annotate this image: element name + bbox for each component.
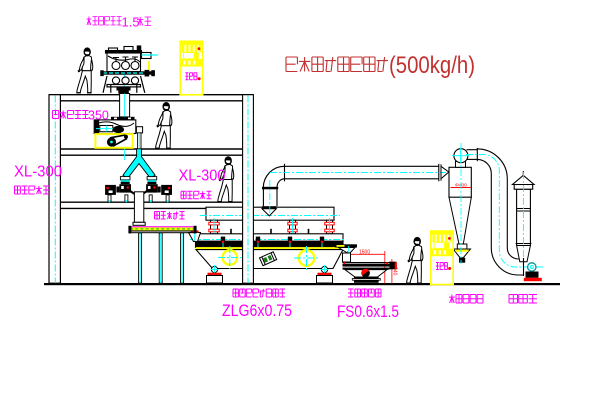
svg-text:1500: 1500 <box>359 250 370 256</box>
svg-text:(500kg/h): (500kg/h) <box>389 52 475 79</box>
svg-text:350: 350 <box>88 109 109 123</box>
svg-text:XL-300: XL-300 <box>14 164 62 181</box>
svg-text:1.5: 1.5 <box>122 15 140 30</box>
svg-text:FS0.6x1.5: FS0.6x1.5 <box>337 302 399 321</box>
svg-text:XL-300: XL-300 <box>179 168 226 185</box>
svg-text:ZLG6x0.75: ZLG6x0.75 <box>222 301 292 320</box>
